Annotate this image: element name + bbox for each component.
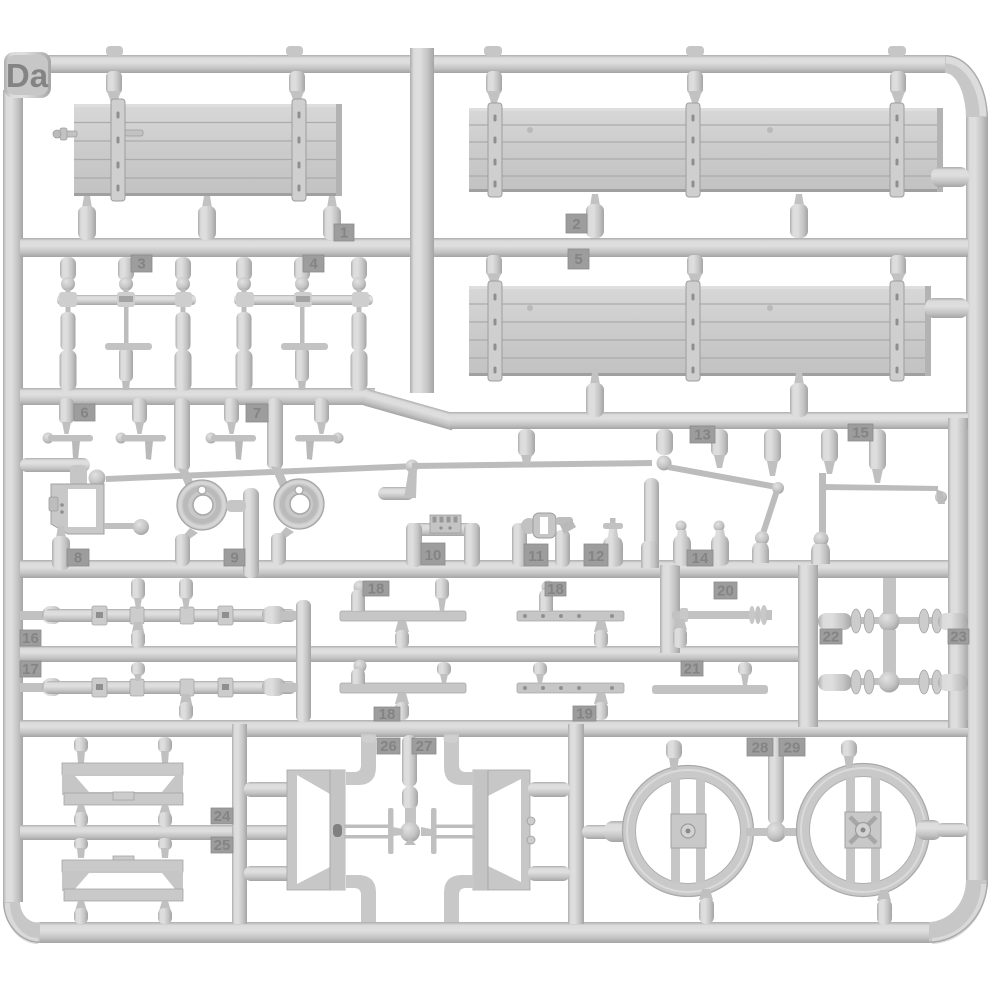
svg-text:26: 26 <box>380 738 397 755</box>
svg-text:18: 18 <box>368 581 385 598</box>
svg-text:17: 17 <box>22 661 39 678</box>
svg-text:9: 9 <box>230 550 238 567</box>
svg-text:28: 28 <box>752 740 769 757</box>
svg-text:19: 19 <box>576 706 593 723</box>
svg-text:23: 23 <box>950 629 967 646</box>
svg-text:29: 29 <box>784 740 801 757</box>
svg-text:25: 25 <box>214 837 231 854</box>
svg-text:2: 2 <box>572 216 580 233</box>
svg-text:3: 3 <box>137 256 145 273</box>
svg-text:12: 12 <box>588 548 605 565</box>
svg-text:6: 6 <box>80 405 88 422</box>
svg-text:1: 1 <box>340 225 348 242</box>
svg-text:15: 15 <box>852 425 869 442</box>
svg-text:13: 13 <box>694 427 711 444</box>
svg-text:27: 27 <box>416 738 433 755</box>
svg-text:14: 14 <box>692 550 709 567</box>
svg-text:20: 20 <box>717 583 734 600</box>
svg-text:10: 10 <box>425 547 442 564</box>
svg-text:5: 5 <box>574 251 582 268</box>
svg-text:22: 22 <box>823 629 840 646</box>
svg-text:21: 21 <box>684 661 701 678</box>
svg-text:18: 18 <box>379 706 396 723</box>
svg-text:11: 11 <box>528 548 544 565</box>
svg-text:Da: Da <box>6 57 49 94</box>
svg-text:4: 4 <box>309 256 318 273</box>
svg-text:16: 16 <box>22 630 39 647</box>
svg-text:18: 18 <box>547 581 564 598</box>
svg-text:7: 7 <box>253 405 261 422</box>
svg-text:8: 8 <box>74 550 82 567</box>
svg-text:24: 24 <box>214 808 231 825</box>
